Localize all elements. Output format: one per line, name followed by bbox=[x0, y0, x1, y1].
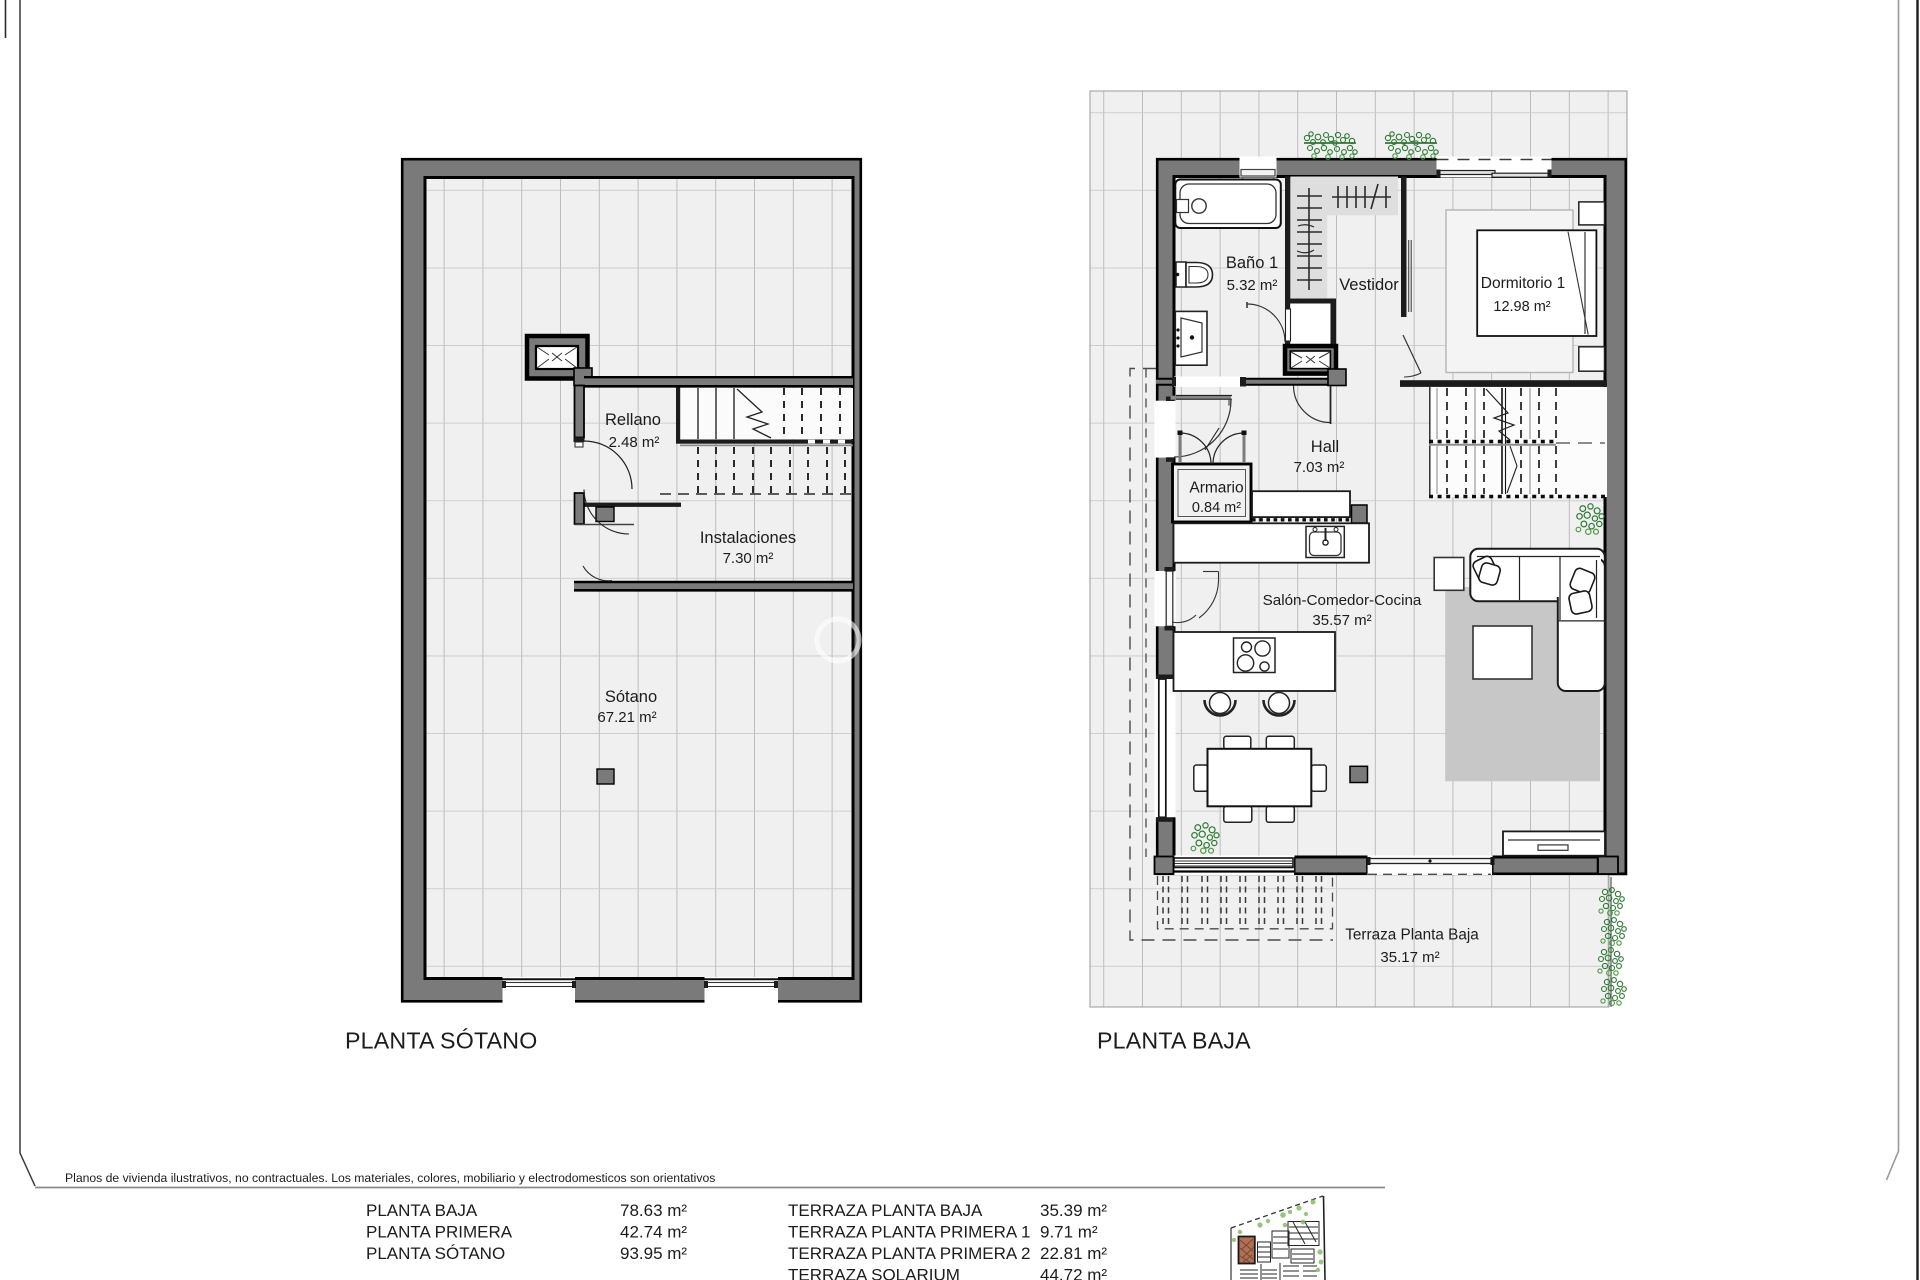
svg-text:Salón-Comedor-Cocina: Salón-Comedor-Cocina bbox=[1263, 592, 1422, 609]
svg-text:PLANTA SÓTANO: PLANTA SÓTANO bbox=[345, 1028, 537, 1054]
svg-text:Baño 1: Baño 1 bbox=[1226, 254, 1278, 272]
svg-text:Planos de vivienda ilustrativo: Planos de vivienda ilustrativos, no cont… bbox=[65, 1171, 715, 1185]
svg-text:35.57 m²: 35.57 m² bbox=[1312, 612, 1371, 629]
svg-text:35.17 m²: 35.17 m² bbox=[1380, 949, 1439, 966]
svg-text:7.30 m²: 7.30 m² bbox=[723, 550, 774, 567]
svg-text:7.03 m²: 7.03 m² bbox=[1294, 459, 1345, 476]
svg-text:67.21 m²: 67.21 m² bbox=[597, 709, 656, 726]
svg-text:93.95 m²: 93.95 m² bbox=[620, 1244, 687, 1263]
svg-text:12.98 m²: 12.98 m² bbox=[1493, 299, 1550, 315]
svg-text:42.74 m²: 42.74 m² bbox=[620, 1223, 687, 1242]
svg-text:Instalaciones: Instalaciones bbox=[700, 529, 796, 547]
svg-text:5.32 m²: 5.32 m² bbox=[1227, 277, 1278, 294]
svg-text:Terraza Planta Baja: Terraza Planta Baja bbox=[1345, 927, 1479, 944]
svg-text:TERRAZA PLANTA BAJA: TERRAZA PLANTA BAJA bbox=[788, 1201, 983, 1220]
svg-text:9.71 m²: 9.71 m² bbox=[1040, 1223, 1098, 1242]
svg-text:PLANTA SÓTANO: PLANTA SÓTANO bbox=[366, 1244, 505, 1263]
svg-text:0.84 m²: 0.84 m² bbox=[1192, 500, 1241, 516]
svg-text:22.81 m²: 22.81 m² bbox=[1040, 1244, 1107, 1263]
svg-text:Sótano: Sótano bbox=[605, 688, 657, 706]
svg-text:Armario: Armario bbox=[1189, 480, 1243, 497]
svg-text:Rellano: Rellano bbox=[605, 411, 661, 429]
svg-text:2.48 m²: 2.48 m² bbox=[609, 434, 660, 451]
svg-text:PLANTA BAJA: PLANTA BAJA bbox=[1097, 1028, 1251, 1054]
svg-text:78.63 m²: 78.63 m² bbox=[620, 1201, 687, 1220]
svg-text:Hall: Hall bbox=[1311, 438, 1339, 456]
svg-text:44.72 m²: 44.72 m² bbox=[1040, 1266, 1107, 1280]
svg-text:PLANTA PRIMERA: PLANTA PRIMERA bbox=[366, 1223, 513, 1242]
svg-text:TERRAZA PLANTA PRIMERA 2: TERRAZA PLANTA PRIMERA 2 bbox=[788, 1244, 1030, 1263]
svg-text:TERRAZA SOLARIUM: TERRAZA SOLARIUM bbox=[788, 1266, 960, 1280]
svg-text:PLANTA BAJA: PLANTA BAJA bbox=[366, 1201, 478, 1220]
svg-text:Vestidor: Vestidor bbox=[1339, 276, 1399, 294]
svg-text:Dormitorio 1: Dormitorio 1 bbox=[1481, 275, 1565, 292]
svg-text:35.39 m²: 35.39 m² bbox=[1040, 1201, 1107, 1220]
svg-text:TERRAZA PLANTA PRIMERA 1: TERRAZA PLANTA PRIMERA 1 bbox=[788, 1223, 1030, 1242]
